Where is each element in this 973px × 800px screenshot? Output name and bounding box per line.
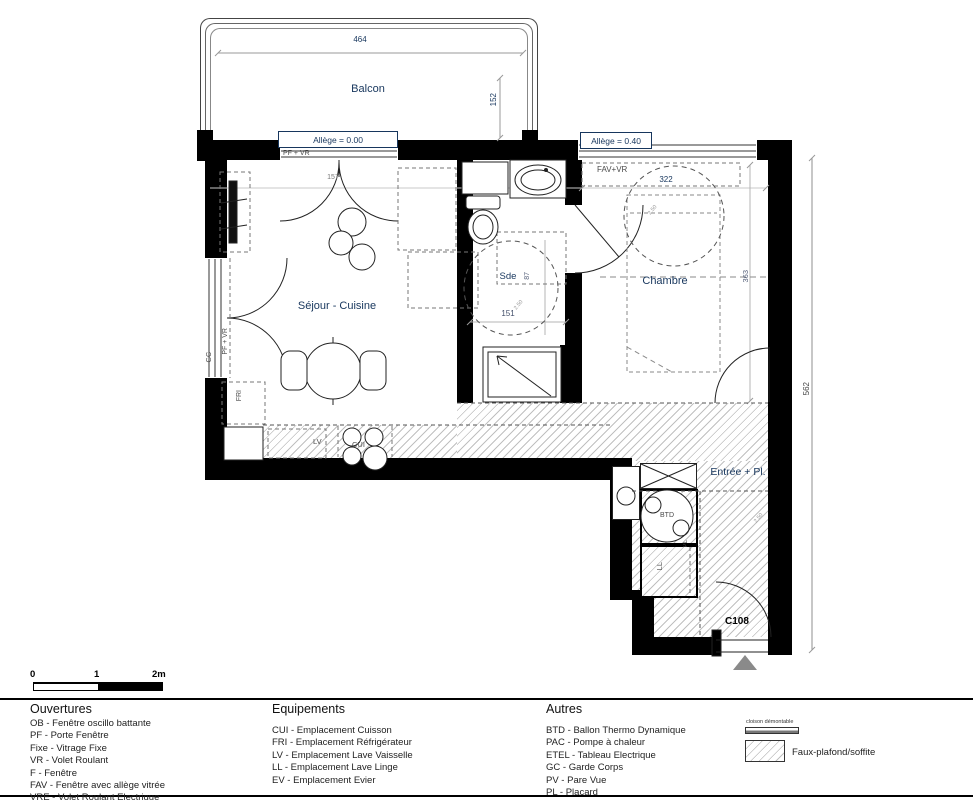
dim-bathroom-depth: 87	[524, 272, 531, 280]
plan-linework	[0, 0, 973, 800]
scale-bar	[33, 682, 163, 691]
label-cui: CUI	[352, 441, 365, 449]
legend-item: OB - Fenêtre oscillo battante	[30, 718, 165, 730]
allege-0-box: Allège = 0.00	[278, 131, 398, 148]
legend-item: PF - Porte Fenêtre	[30, 730, 165, 742]
label-ll: LL	[656, 562, 664, 570]
room-label-living-kitchen: Séjour - Cuisine	[262, 301, 412, 312]
room-label-bedroom: Chambre	[622, 276, 708, 287]
dim-overall-height: 562	[803, 382, 811, 395]
symbol-label-cloison: cloison démontable	[746, 720, 793, 726]
label-pl: PL	[683, 540, 689, 547]
room-label-balcony: Balcon	[340, 84, 396, 95]
legend-item: LL - Emplacement Lave Linge	[272, 762, 413, 774]
label-btd: BTD	[655, 512, 679, 519]
legend-item: EV - Emplacement Evier	[272, 775, 413, 787]
label-pf-vr-left: PF + VR	[222, 328, 229, 355]
legend-item: PAC - Pompe à chaleur	[546, 737, 686, 749]
label-pf-vr-top: PF + VR	[283, 150, 310, 157]
dim-bedroom-depth: 363	[742, 270, 750, 283]
allege-0-label: Allège = 0.00	[313, 135, 363, 145]
legend-item: BTD - Ballon Thermo Dynamique	[546, 725, 686, 737]
dim-balcony-width: 464	[346, 36, 374, 44]
legend-item: Fixe - Vitrage Fixe	[30, 743, 165, 755]
room-label-bathroom: Sde	[490, 272, 526, 282]
label-fav-vr: FAV+VR	[597, 166, 627, 174]
symbol-label-faux-plafond: Faux-plafond/soffite	[792, 748, 875, 758]
scale-bar-segment-white	[34, 684, 98, 690]
fixtures	[221, 160, 768, 656]
legend-top-rule	[0, 698, 973, 700]
scale-0: 0	[30, 670, 35, 680]
scale-bar-segment-black	[98, 684, 162, 690]
legend-list-autres: BTD - Ballon Thermo Dynamique PAC - Pomp…	[546, 725, 686, 799]
legend-item: PV - Pare Vue	[546, 775, 686, 787]
legend-title-autres: Autres	[546, 702, 582, 716]
label-fri: FRI	[236, 390, 243, 401]
allege-40-label: Allège = 0.40	[591, 136, 641, 146]
dim-bedroom-width: 322	[652, 176, 680, 184]
floorplan-page: { "plan": { "rooms": { "balcony": "Balco…	[0, 0, 973, 800]
symbol-cloison-demontable	[745, 727, 799, 734]
legend-item: FRI - Emplacement Réfrigérateur	[272, 737, 413, 749]
legend-item: F - Fenêtre	[30, 768, 165, 780]
entrance-arrow	[733, 655, 757, 670]
legend-title-equipements: Equipements	[272, 702, 345, 716]
legend-item: PL - Placard	[546, 787, 686, 799]
legend-item: GC - Garde Corps	[546, 762, 686, 774]
legend-item: VRE - Volet Roulant Electrique	[30, 792, 165, 800]
dim-window-width: 157	[320, 174, 346, 181]
label-unit-number: C108	[725, 617, 749, 627]
legend-item: VR - Volet Roulant	[30, 755, 165, 767]
scale-2m: 2m	[152, 670, 166, 680]
legend-item: LV - Emplacement Lave Vaisselle	[272, 750, 413, 762]
allege-40-box: Allège = 0.40	[580, 132, 652, 149]
scale-1: 1	[94, 670, 99, 680]
legend-title-ouvertures: Ouvertures	[30, 702, 92, 716]
legend-item: ETEL - Tableau Electrique	[546, 750, 686, 762]
dim-balcony-depth: 152	[490, 93, 498, 106]
legend-item: CUI - Emplacement Cuisson	[272, 725, 413, 737]
label-lv: LV	[313, 438, 322, 446]
symbol-faux-plafond	[745, 740, 785, 762]
label-gc: GC	[206, 352, 213, 363]
legend-list-equipements: CUI - Emplacement Cuisson FRI - Emplacem…	[272, 725, 413, 787]
room-label-entrance: Entrée + Pl.	[688, 467, 788, 478]
legend-list-ouvertures: OB - Fenêtre oscillo battante PF - Porte…	[30, 718, 165, 800]
legend-item: FAV - Fenêtre avec allège vitrée	[30, 780, 165, 792]
